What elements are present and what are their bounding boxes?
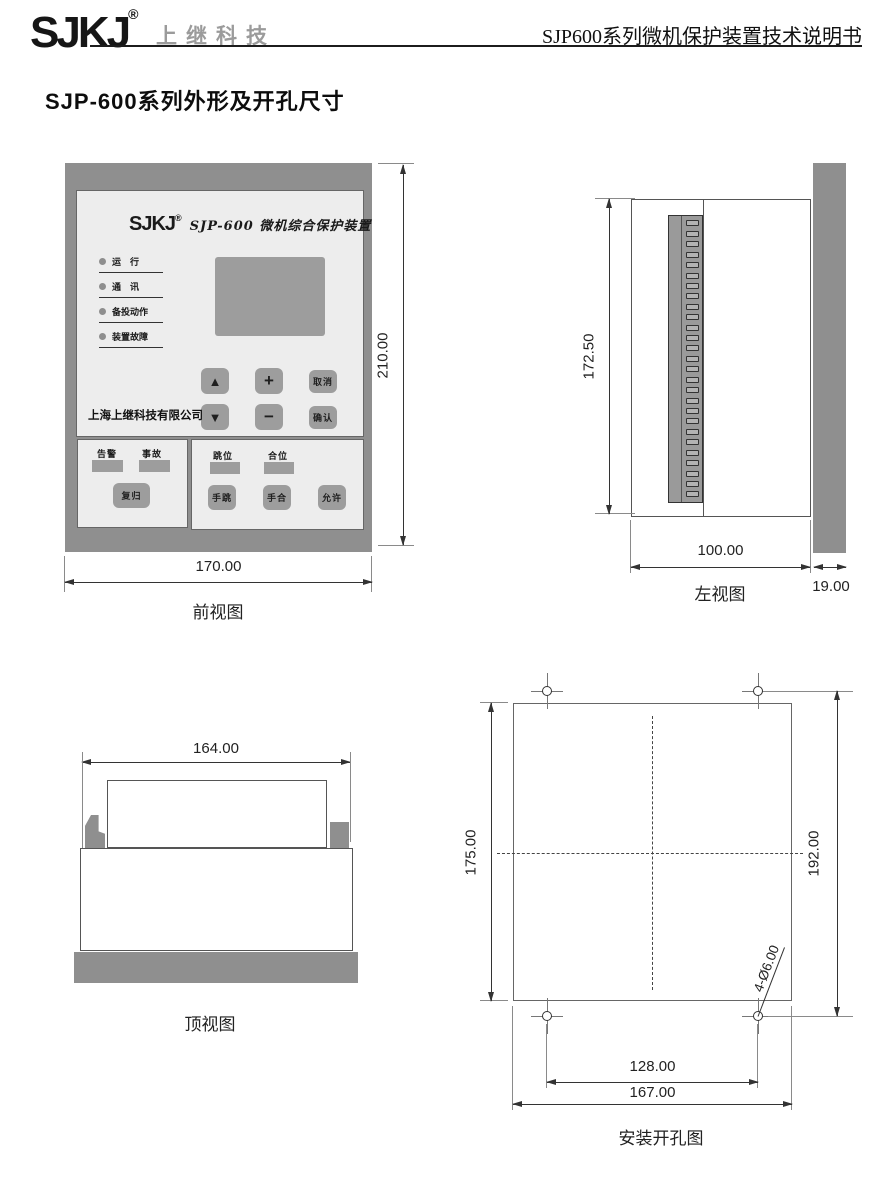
extension-line: [768, 1016, 853, 1017]
terminal-cell: [686, 450, 699, 456]
left-view-caption: 左视图: [674, 580, 766, 605]
dim-front-height-box: 210.00: [368, 165, 398, 545]
signal-box-right: 跳位 合位 手跳 手合 允许: [191, 439, 364, 530]
terminal-cell: [686, 491, 699, 497]
terminal-cell: [686, 356, 699, 362]
top-view-caption: 顶视图: [160, 1010, 260, 1035]
registered-mark-icon: ®: [128, 6, 138, 22]
led-icon: [99, 283, 106, 290]
dim-side-height: 172.50: [581, 334, 598, 380]
terminal-cell: [686, 283, 699, 289]
terminal-cell: [686, 481, 699, 487]
key-manual-close: 手合: [263, 485, 291, 510]
extension-line: [378, 545, 414, 546]
dim-line-cutout-height: [491, 703, 492, 1001]
key-minus: −: [255, 404, 283, 430]
led-row: 通 讯: [99, 280, 163, 298]
indicator-window: [264, 462, 294, 474]
terminal-cell: [686, 366, 699, 372]
terminal-block-divider: [669, 216, 682, 502]
panel-registered-mark-icon: ®: [175, 213, 182, 223]
panel-company-name: 上海上继科技有限公司: [88, 407, 203, 423]
led-row: 装置故障: [99, 330, 163, 348]
dim-top-width: 164.00: [82, 740, 350, 757]
dim-line-front-height: [403, 165, 404, 545]
key-cancel: 取消: [309, 370, 337, 393]
indicator-window: [210, 462, 240, 474]
brand-logo-text: SJKJ: [30, 8, 128, 57]
front-view-frame: SJKJ®SJP-600 微机综合保护装置 运 行 通 讯 备投动作 装置故: [65, 163, 372, 552]
top-view-clip-right: [330, 822, 349, 849]
terminal-cell: [686, 377, 699, 383]
top-view-case: [80, 848, 353, 951]
dim-line-front-width: [65, 582, 372, 583]
terminal-cell: [686, 304, 699, 310]
top-view-bezel-bar: [74, 952, 358, 983]
terminal-cell: [686, 398, 699, 404]
dim-line-top-width: [82, 762, 350, 763]
dim-side-height-box: 172.50: [574, 199, 604, 514]
terminal-cell: [686, 252, 699, 258]
dim-cutout-width: 167.00: [513, 1084, 792, 1101]
led-indicator-list: 运 行 通 讯 备投动作 装置故障: [99, 255, 163, 355]
left-view-body: [631, 199, 811, 517]
key-confirm: 确认: [309, 406, 337, 429]
mounting-hole: [753, 686, 763, 696]
key-manual-trip: 手跳: [208, 485, 236, 510]
led-label: 备投动作: [112, 305, 148, 318]
dim-cutout-height: 175.00: [463, 829, 480, 875]
left-view-bezel: [813, 163, 846, 553]
top-view-chassis: [107, 780, 327, 848]
extension-line: [350, 752, 351, 842]
key-plus: +: [255, 368, 283, 394]
key-down: ▼: [201, 404, 229, 430]
dim-line-bezel: [814, 567, 846, 568]
dim-cutout-height-box: 175.00: [456, 703, 486, 1001]
terminal-cell: [686, 293, 699, 299]
dim-bezel: 19.00: [800, 578, 862, 595]
dim-hole-v-spacing: 192.00: [806, 831, 823, 877]
manual-page: SJKJ® 上继科技 SJP600系列微机保护装置技术说明书 SJP-600系列…: [0, 0, 888, 1181]
dim-line-depth: [631, 567, 810, 568]
led-icon: [99, 308, 106, 315]
terminal-cell: [686, 460, 699, 466]
terminal-cell: [686, 429, 699, 435]
indicator-window: [92, 460, 123, 472]
centerline-horizontal: [497, 853, 803, 854]
front-view-caption: 前视图: [168, 598, 268, 623]
led-label: 运 行: [112, 255, 139, 268]
panel-model-title: SJP-600 微机综合保护装置: [190, 219, 372, 234]
brand-logo: SJKJ®: [30, 8, 138, 58]
indicator-label: 告警: [97, 447, 117, 460]
hole-size-label-box: 4-Ø6.00: [726, 958, 806, 978]
led-row: 备投动作: [99, 305, 163, 323]
terminal-cell: [686, 387, 699, 393]
header-rule: [90, 45, 862, 47]
dim-hole-h-spacing: 128.00: [547, 1058, 758, 1075]
body-divider-line: [703, 200, 704, 516]
install-view-caption: 安装开孔图: [591, 1124, 731, 1149]
panel-brand-text: SJKJ: [129, 213, 175, 235]
dim-line-side-height: [609, 199, 610, 514]
dim-front-height: 210.00: [375, 332, 392, 378]
terminal-block: [668, 215, 703, 503]
terminal-cell: [686, 408, 699, 414]
key-reset: 复归: [113, 483, 150, 508]
terminal-cell: [686, 273, 699, 279]
page-title: SJP-600系列外形及开孔尺寸: [45, 84, 345, 116]
terminal-cell: [686, 335, 699, 341]
indicator-label: 跳位: [213, 449, 233, 462]
led-label: 装置故障: [112, 330, 148, 343]
key-up: ▲: [201, 368, 229, 394]
led-icon: [99, 258, 106, 265]
dim-depth: 100.00: [631, 542, 810, 559]
terminal-cell: [686, 418, 699, 424]
led-icon: [99, 333, 106, 340]
indicator-window: [139, 460, 170, 472]
lcd-screen: [215, 257, 325, 336]
dim-line-cutout-width: [513, 1104, 792, 1105]
dim-line-hole-h-spacing: [547, 1082, 758, 1083]
terminal-cell: [686, 471, 699, 477]
terminal-cell: [686, 439, 699, 445]
mounting-hole: [542, 686, 552, 696]
extension-line: [378, 163, 414, 164]
terminal-cell: [686, 345, 699, 351]
terminal-cell: [686, 325, 699, 331]
terminal-cell: [686, 220, 699, 226]
mounting-hole: [542, 1011, 552, 1021]
dim-line-hole-v-spacing: [837, 691, 838, 1016]
indicator-label: 事故: [142, 447, 162, 460]
top-view-clip-left: [85, 815, 105, 849]
dim-front-width: 170.00: [65, 558, 372, 575]
terminal-cell: [686, 262, 699, 268]
front-panel-header: SJKJ®SJP-600 微机综合保护装置: [129, 213, 371, 236]
terminal-cell: [686, 314, 699, 320]
extension-line: [82, 752, 83, 850]
signal-box-left: 告警 事故 复归: [77, 439, 188, 528]
led-row: 运 行: [99, 255, 163, 273]
terminal-strip: [682, 216, 702, 502]
indicator-label: 合位: [268, 449, 288, 462]
led-label: 通 讯: [112, 280, 139, 293]
terminal-cell: [686, 241, 699, 247]
key-permit: 允许: [318, 485, 346, 510]
front-panel: SJKJ®SJP-600 微机综合保护装置 运 行 通 讯 备投动作 装置故: [76, 190, 364, 437]
terminal-cell: [686, 231, 699, 237]
